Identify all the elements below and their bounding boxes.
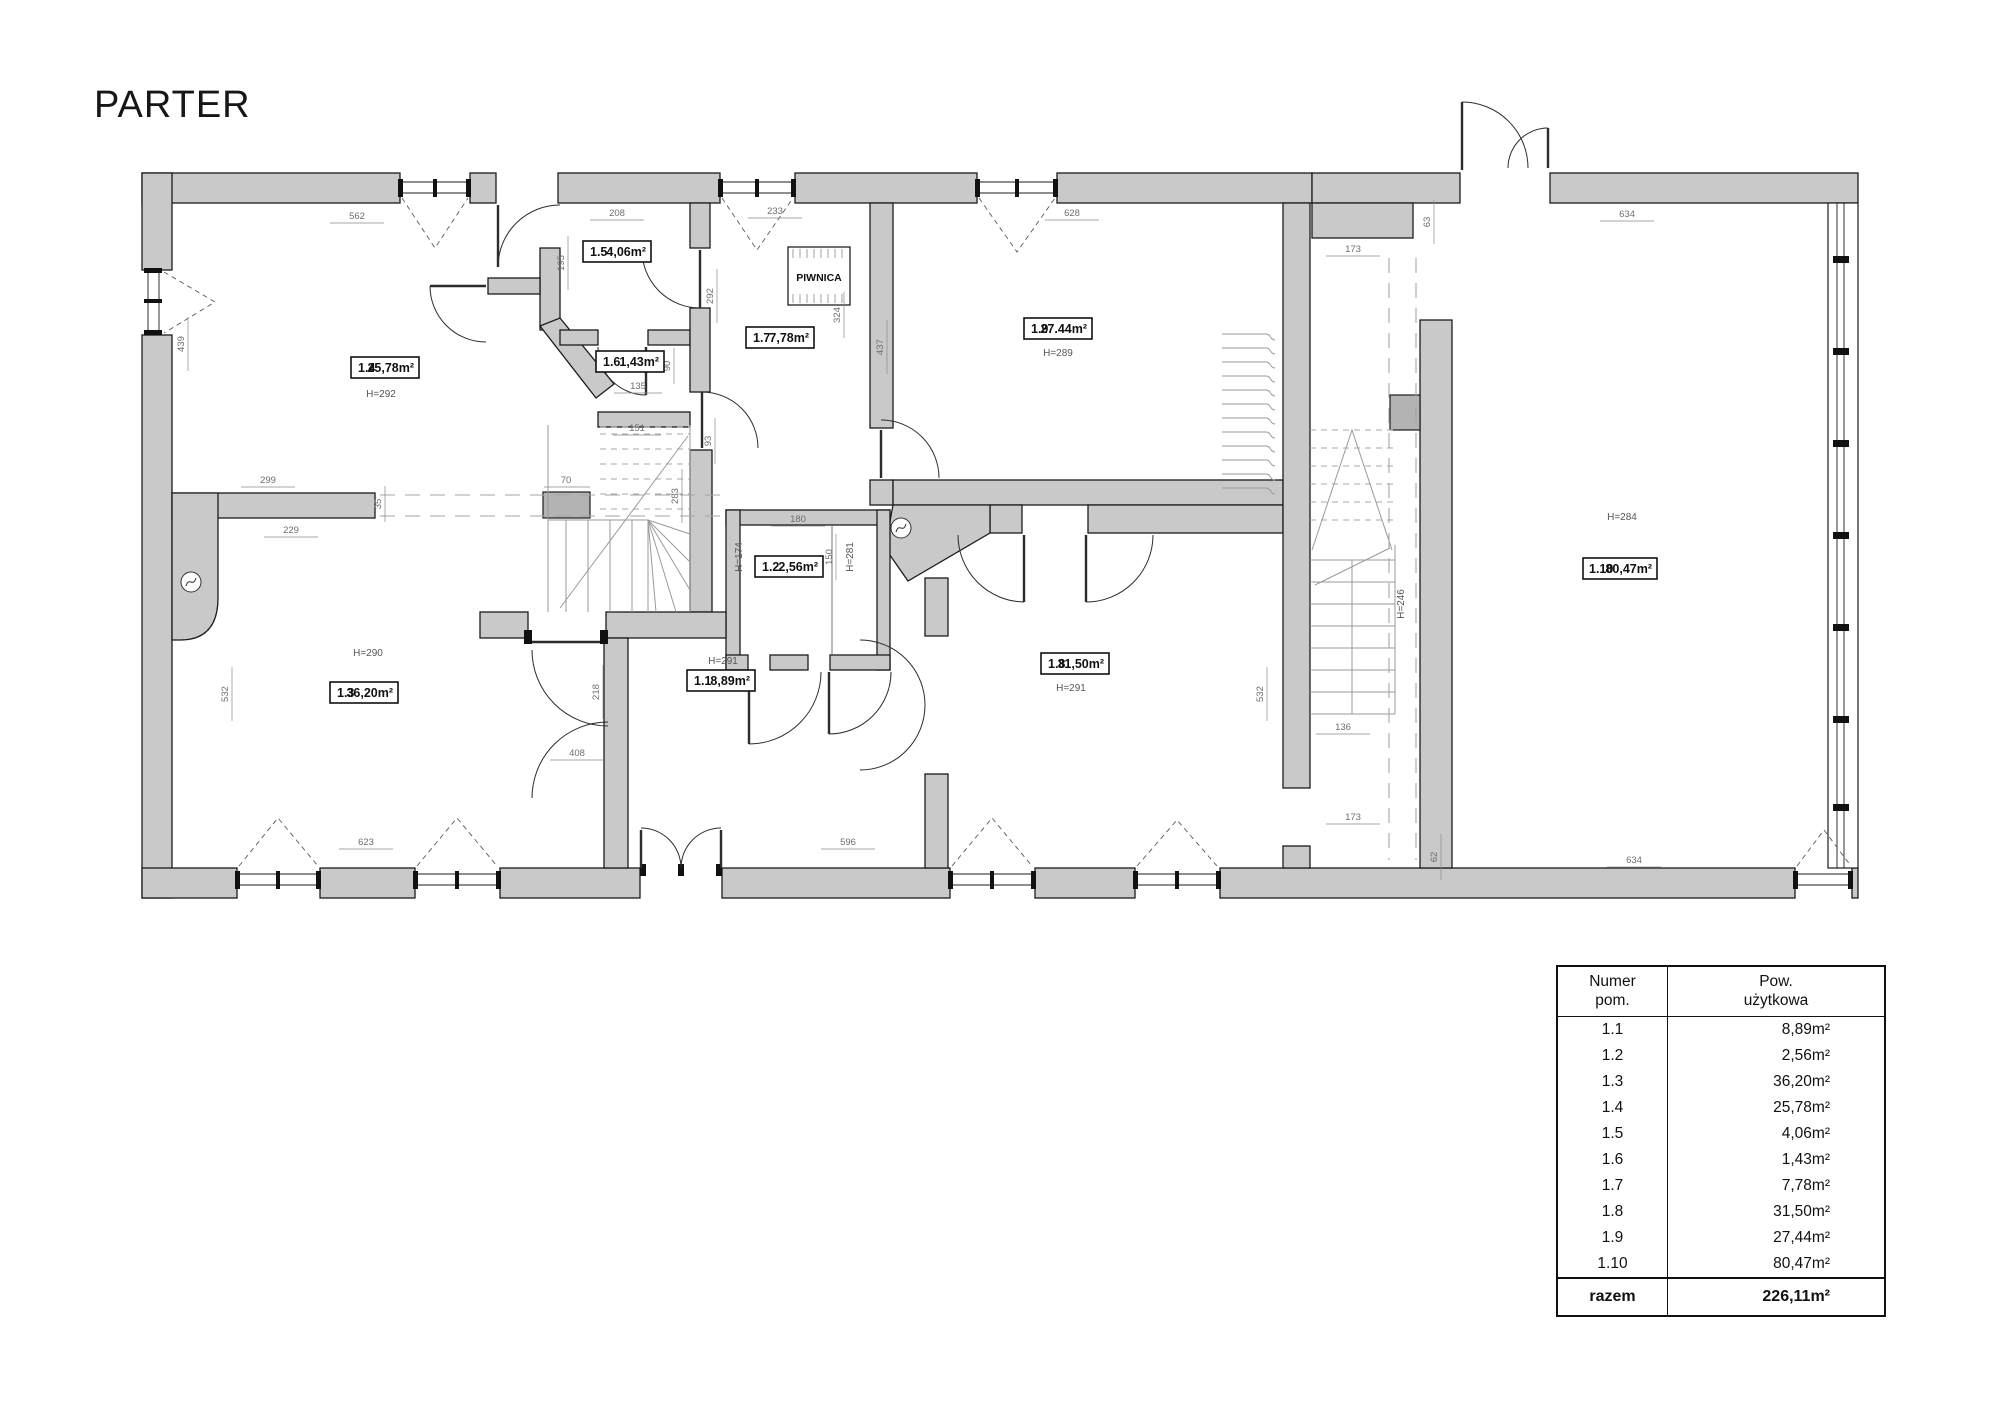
table-row: 1.77,78m² <box>1558 1173 1884 1199</box>
svg-text:324: 324 <box>832 307 843 323</box>
dim: 229 <box>264 525 318 537</box>
svg-text:1.2: 1.2 <box>762 560 779 574</box>
svg-text:173: 173 <box>1345 244 1361 255</box>
svg-text:93: 93 <box>703 436 714 447</box>
svg-text:408: 408 <box>569 748 585 759</box>
dim: 63 <box>1422 200 1434 244</box>
height-label: H=289 <box>1043 348 1073 359</box>
svg-text:136: 136 <box>1335 722 1351 733</box>
dim: 173 <box>1326 244 1380 256</box>
svg-text:437: 437 <box>875 339 886 355</box>
svg-text:634: 634 <box>1626 855 1642 866</box>
svg-text:634: 634 <box>1619 209 1635 220</box>
stairs-right <box>1222 258 1416 860</box>
height-label: H=290 <box>353 648 383 659</box>
area-table: Numer pom. Pow. użytkowa 1.18,89m² 1.22,… <box>1556 965 1886 1317</box>
total-label: razem <box>1558 1279 1668 1315</box>
svg-text:7,78m²: 7,78m² <box>769 331 809 345</box>
svg-text:562: 562 <box>349 211 365 222</box>
svg-text:229: 229 <box>283 525 299 536</box>
dim: 70 <box>544 475 590 487</box>
dim: 173 <box>1326 812 1380 824</box>
svg-text:2,56m²: 2,56m² <box>778 560 818 574</box>
svg-text:27.44m²: 27.44m² <box>1040 322 1087 336</box>
svg-text:36,20m²: 36,20m² <box>346 686 393 700</box>
table-row: 1.1080,47m² <box>1558 1251 1884 1277</box>
window-symbols <box>144 179 1853 889</box>
svg-text:233: 233 <box>767 206 783 217</box>
stairs-upper-comb <box>1222 334 1275 494</box>
svg-text:8,89m²: 8,89m² <box>710 674 750 688</box>
dim: 218 <box>591 665 603 719</box>
svg-text:135: 135 <box>630 381 646 392</box>
window-symbol <box>398 179 471 248</box>
room-label-1-7: 1.77,78m² <box>746 327 814 348</box>
svg-text:63: 63 <box>1422 217 1433 228</box>
svg-text:1.1: 1.1 <box>694 674 711 688</box>
svg-text:439: 439 <box>176 336 187 352</box>
height-label: H=246 <box>1396 589 1407 619</box>
door-arc <box>430 286 486 342</box>
window-symbol <box>975 179 1058 252</box>
height-label: H=291 <box>1056 683 1086 694</box>
window-symbol <box>235 818 321 889</box>
room-label-1-5: 1.54,06m² <box>583 241 651 262</box>
svg-text:25,78m²: 25,78m² <box>367 361 414 375</box>
table-row: 1.61,43m² <box>1558 1147 1884 1173</box>
svg-text:173: 173 <box>1345 812 1361 823</box>
svg-text:62: 62 <box>1429 852 1440 863</box>
dim: 634 <box>1600 209 1654 221</box>
door-arc <box>829 672 891 734</box>
window-symbol <box>718 179 796 250</box>
dim: 208 <box>590 208 644 220</box>
door-arc <box>640 828 722 876</box>
window-symbol <box>413 818 501 889</box>
door-arc <box>1086 535 1153 602</box>
svg-text:1.5: 1.5 <box>590 245 607 259</box>
dim: 136 <box>1316 722 1370 734</box>
svg-text:628: 628 <box>1064 208 1080 219</box>
height-label: H=284 <box>1607 512 1637 523</box>
glazed-wall <box>1828 203 1858 868</box>
window-symbol <box>144 268 215 335</box>
height-label: H=292 <box>366 389 396 400</box>
svg-text:208: 208 <box>609 208 625 219</box>
height-label: H=281 <box>845 542 856 572</box>
dim: 532 <box>1255 667 1267 721</box>
door-arc <box>749 672 821 744</box>
svg-text:283: 283 <box>670 488 681 504</box>
dim: 408 <box>550 748 604 760</box>
room-label-1-9: 1.927.44m² <box>1024 318 1092 339</box>
table-row: 1.927,44m² <box>1558 1225 1884 1251</box>
page: PARTER <box>0 0 2000 1414</box>
basement-label: PIWNICA <box>796 272 842 284</box>
svg-text:292: 292 <box>705 288 716 304</box>
total-area: 226,11m² <box>1668 1279 1884 1315</box>
svg-text:1.7: 1.7 <box>753 331 770 345</box>
table-row: 1.22,56m² <box>1558 1043 1884 1069</box>
header-pow: Pow. użytkowa <box>1668 967 1884 1016</box>
svg-text:150: 150 <box>824 549 835 565</box>
room-label-1-3: 1.336,20m² <box>330 682 398 703</box>
room-label-1-4: 1.425,78m² <box>351 357 419 378</box>
svg-text:299: 299 <box>260 475 276 486</box>
basement-stair: PIWNICA <box>788 247 850 305</box>
window-symbol <box>1133 820 1221 889</box>
stairs-dashed-flight <box>1310 430 1393 550</box>
table-row: 1.336,20m² <box>1558 1069 1884 1095</box>
stairs-lower-flight <box>1310 545 1395 714</box>
dim: 283 <box>670 469 682 523</box>
height-label: H=174 <box>734 542 745 572</box>
room-label-1-6: 1.61,43m² <box>596 351 664 372</box>
svg-text:151: 151 <box>629 423 645 434</box>
room-label-1-10: 1.1080,47m² <box>1583 558 1657 579</box>
dim: 562 <box>330 211 384 223</box>
svg-text:35: 35 <box>373 499 384 510</box>
room-label-1-1: 1.18,89m² <box>687 670 755 691</box>
svg-text:218: 218 <box>591 684 602 700</box>
svg-text:70: 70 <box>561 475 572 486</box>
door-arc <box>524 630 608 798</box>
svg-text:1.6: 1.6 <box>603 355 620 369</box>
room-label-1-8: 1.831,50m² <box>1041 653 1109 674</box>
meter-symbol <box>891 518 911 538</box>
dim: 150 <box>824 534 836 580</box>
table-row: 1.425,78m² <box>1558 1095 1884 1121</box>
svg-text:532: 532 <box>220 686 231 702</box>
svg-text:4,06m²: 4,06m² <box>606 245 646 259</box>
svg-text:596: 596 <box>840 837 856 848</box>
window-symbol <box>948 818 1036 889</box>
table-row: 1.18,89m² <box>1558 1017 1884 1043</box>
room-label-1-2: 1.22,56m² <box>755 556 823 577</box>
header-numer: Numer pom. <box>1558 967 1668 1016</box>
svg-text:180: 180 <box>790 514 806 525</box>
dim: 628 <box>1045 208 1099 220</box>
svg-text:532: 532 <box>1255 686 1266 702</box>
svg-text:1,43m²: 1,43m² <box>619 355 659 369</box>
table-row: 1.54,06m² <box>1558 1121 1884 1147</box>
table-total-row: razem 226,11m² <box>1558 1277 1884 1315</box>
dim: 299 <box>241 475 295 487</box>
table-header: Numer pom. Pow. użytkowa <box>1558 967 1884 1017</box>
dim: 135 <box>614 381 662 393</box>
svg-text:195: 195 <box>556 255 567 271</box>
dim: 233 <box>748 206 802 218</box>
svg-text:31,50m²: 31,50m² <box>1057 657 1104 671</box>
door-arc <box>1462 102 1548 170</box>
svg-text:80,47m²: 80,47m² <box>1605 562 1652 576</box>
height-label: H=291 <box>708 656 738 667</box>
door-arc <box>881 420 939 478</box>
dim: 623 <box>339 837 393 849</box>
meter-symbol <box>181 572 201 592</box>
svg-text:623: 623 <box>358 837 374 848</box>
dim: 596 <box>821 837 875 849</box>
dim: 532 <box>220 667 232 721</box>
table-row: 1.831,50m² <box>1558 1199 1884 1225</box>
dim: 634 <box>1607 855 1661 867</box>
walls <box>142 173 1858 898</box>
